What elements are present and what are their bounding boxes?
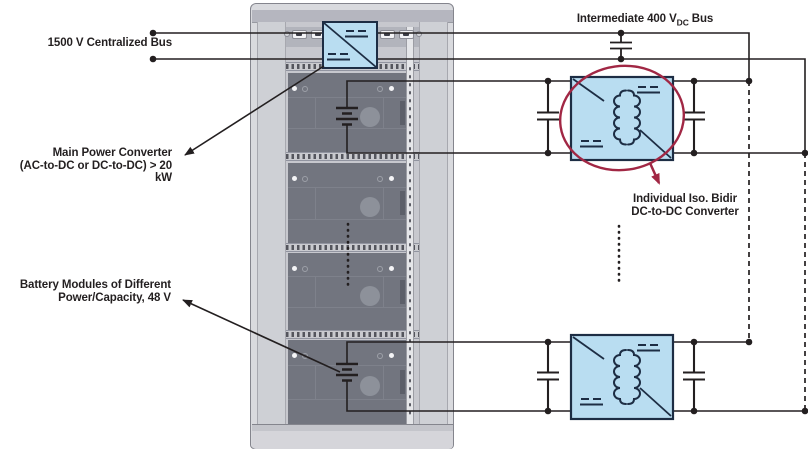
main-converter-text-1: Main Power Converter	[0, 147, 172, 160]
highlight-callout-arrow	[650, 163, 659, 183]
iso-converter-text-1: Individual Iso. Bidir	[590, 193, 780, 206]
intermediate-bus-suffix: Bus	[692, 13, 713, 25]
schematic-overlay	[0, 0, 808, 454]
converter-box	[571, 335, 673, 419]
capacitor-icon	[683, 342, 705, 411]
junction-dots	[150, 30, 808, 415]
iso-dcdc-converter-bottom	[571, 335, 673, 419]
bus-wire-negative	[153, 59, 805, 153]
intermediate-bus-subscript: DC	[677, 17, 689, 27]
main-converter-text-2: (AC-to-DC or DC-to-DC) > 20 kW	[0, 160, 172, 185]
schematic-diagram: 1500 V Centralized Bus Main Power Conver…	[0, 0, 808, 454]
centralized-bus-label: 1500 V Centralized Bus	[0, 37, 172, 50]
capacitor-icon	[610, 33, 632, 59]
battery-icon	[336, 108, 358, 125]
centralized-bus-text: 1500 V Centralized Bus	[48, 37, 172, 49]
capacitor-icon	[537, 81, 559, 153]
dashed-wires	[749, 81, 805, 411]
battery-modules-text-1: Battery Modules of Different	[0, 279, 171, 292]
main-converter-label: Main Power Converter (AC-to-DC or DC-to-…	[0, 147, 172, 185]
iso-dcdc-converter-top	[571, 77, 673, 160]
battery-modules-text-2: Power/Capacity, 48 V	[0, 292, 171, 305]
intermediate-bus-label: Intermediate 400 VDCBus	[545, 13, 745, 29]
wires	[153, 33, 805, 411]
capacitor-icon	[683, 81, 705, 153]
capacitor-icon	[537, 342, 559, 411]
iso-converter-text-2: DC-to-DC Converter	[590, 206, 780, 219]
iso-converter-label: Individual Iso. Bidir DC-to-DC Converter	[590, 193, 780, 218]
main-power-converter	[323, 22, 377, 68]
intermediate-bus-text: Intermediate 400 V	[577, 13, 677, 25]
battery-modules-callout-arrow	[183, 300, 340, 372]
main-converter-callout-arrow	[185, 66, 324, 155]
battery-modules-label: Battery Modules of Different Power/Capac…	[0, 279, 171, 304]
